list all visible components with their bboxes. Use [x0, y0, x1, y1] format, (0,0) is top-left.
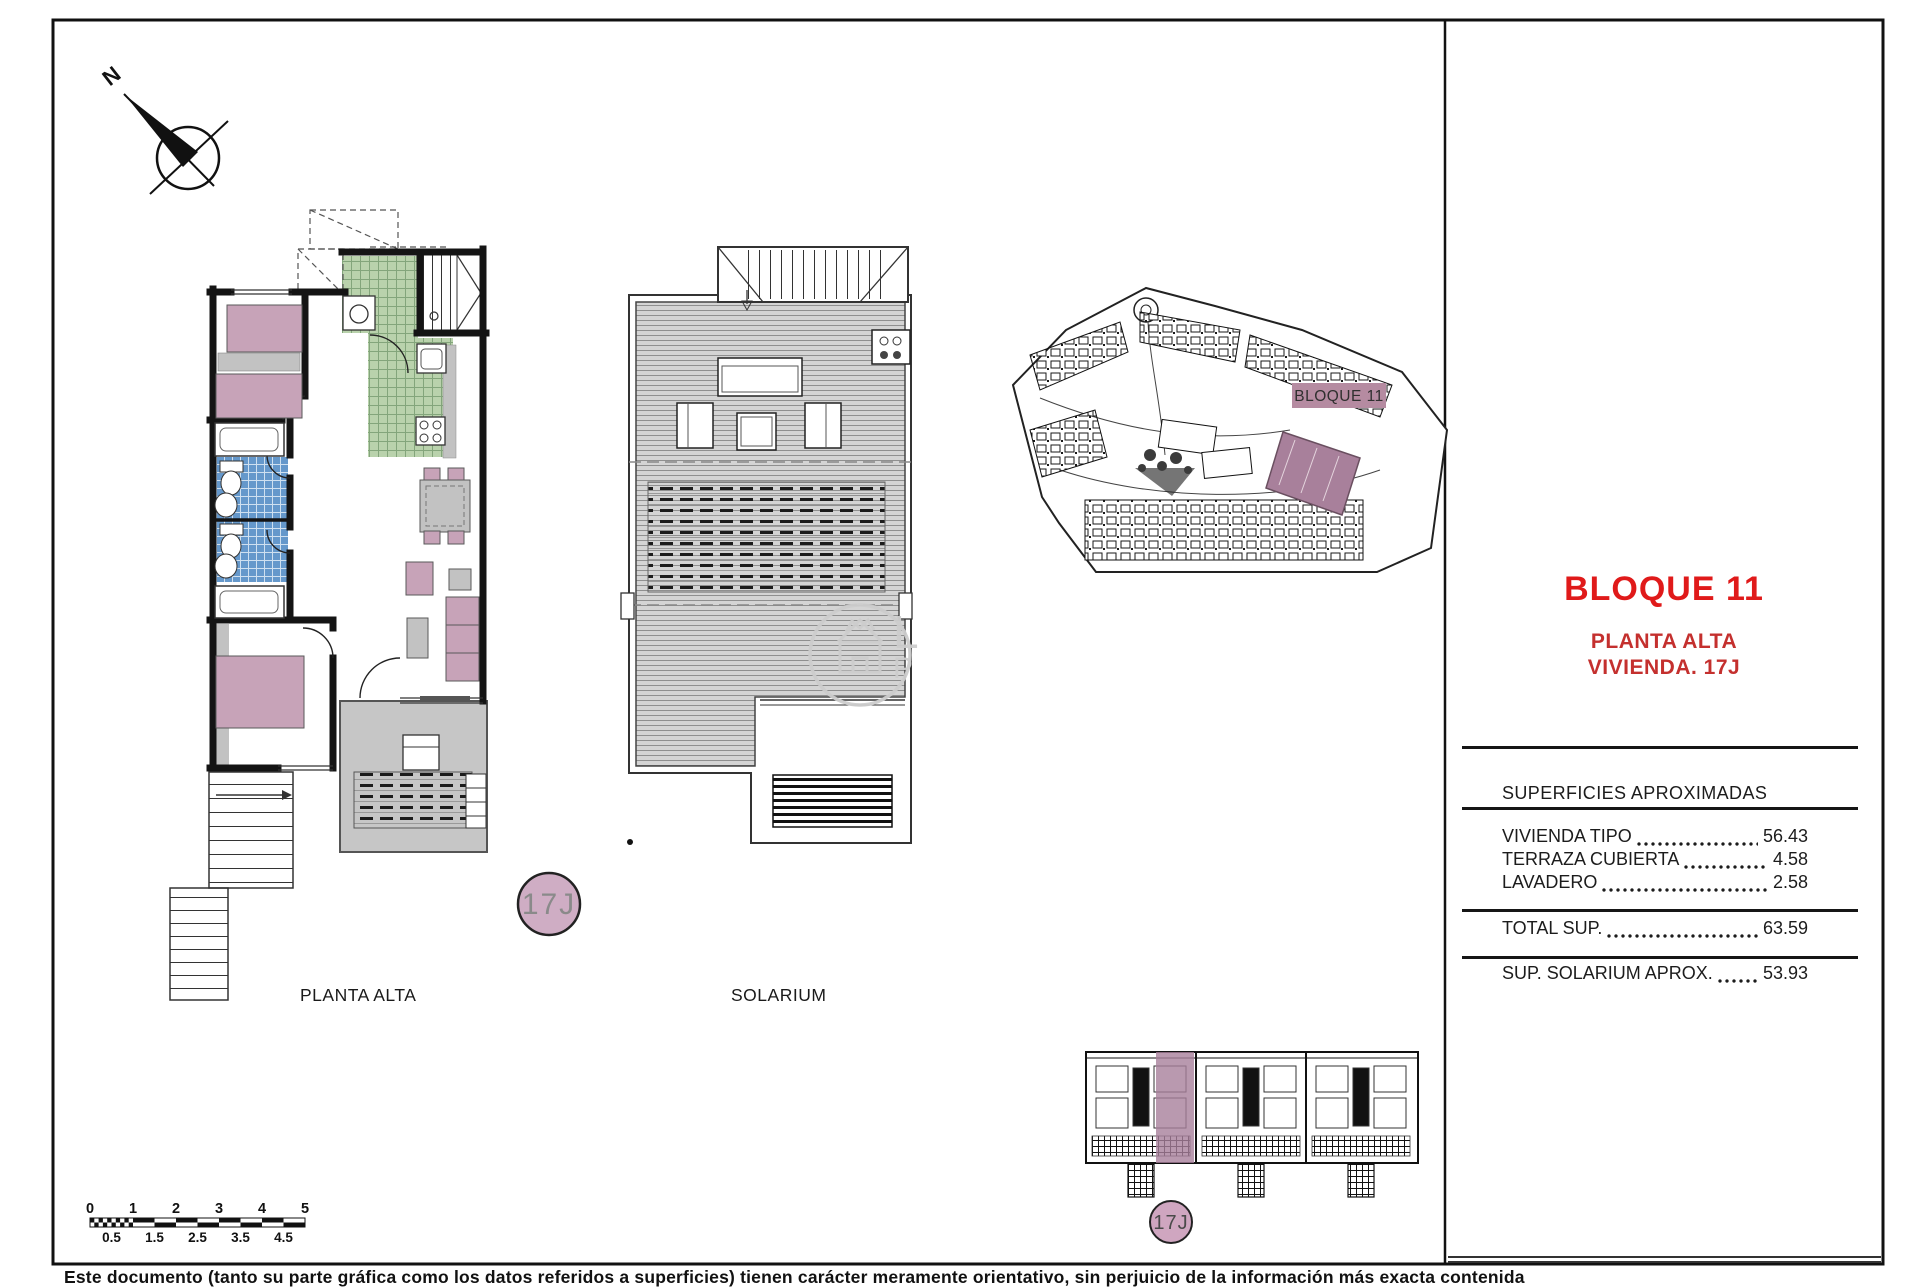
scale-tick-0: 0 [86, 1201, 94, 1217]
scale-bar-bottom-labels: 0.5 1.5 2.5 3.5 4.5 [102, 1230, 293, 1245]
watermark-letter-bottom: P [893, 652, 913, 685]
exterior-staircase [170, 772, 293, 1000]
key-plan-units [1092, 1066, 1410, 1156]
surface-label: TERRAZA CUBIERTA [1502, 849, 1679, 870]
surface-label: VIVIENDA TIPO [1502, 826, 1632, 847]
cabinet [407, 618, 428, 658]
scale-tick-15: 1.5 [145, 1230, 164, 1245]
key-plan-highlighted-unit [1156, 1052, 1194, 1163]
stove [416, 417, 445, 445]
key-plan-stair-towers [1128, 1163, 1374, 1197]
leader-dots [1718, 969, 1758, 984]
surface-solarium-row: SUP. SOLARIUM APROX. 53.93 [1502, 963, 1808, 984]
ac-unit [403, 735, 439, 770]
site-plan: BLOQUE 11 [1013, 288, 1447, 572]
bed-double [216, 656, 304, 728]
scale-tick-5: 5 [301, 1201, 309, 1217]
corner-dot [627, 839, 633, 845]
scale-tick-45: 4.5 [274, 1230, 293, 1245]
plan-sheet: N [0, 0, 1920, 1280]
rule [1462, 956, 1858, 959]
site-block-label-text: BLOQUE 11 [1294, 388, 1384, 405]
leader-dots [1637, 832, 1758, 847]
sink-2 [215, 554, 237, 578]
scale-bar: 0 1 2 3 4 5 0.5 1.5 2.5 3.5 4.5 [86, 1201, 309, 1245]
floor-plan-unit-badge-label: 17J [522, 888, 576, 921]
key-plan-unit-badge-label: 17J [1153, 1212, 1188, 1234]
kitchen-sink [417, 344, 446, 373]
surface-value: 56.43 [1763, 826, 1808, 847]
surface-label: TOTAL SUP. [1502, 918, 1602, 939]
rule [1462, 746, 1858, 749]
surface-row: TERRAZA CUBIERTA 4.58 [1502, 849, 1808, 870]
pillar-marker-left [621, 593, 634, 619]
solarium-stair-access [718, 247, 908, 310]
scale-tick-35: 3.5 [231, 1230, 250, 1245]
surface-value: 63.59 [1763, 918, 1808, 939]
washing-machine [343, 296, 375, 330]
dining-set [420, 468, 470, 544]
scale-tick-1: 1 [129, 1201, 137, 1217]
scale-tick-4: 4 [258, 1201, 266, 1217]
divider [1448, 1256, 1881, 1258]
leader-dots [1684, 855, 1768, 870]
sink-1 [215, 493, 237, 517]
north-arrow-icon: N [97, 61, 228, 194]
solarium-plan: SOLARIUM [621, 247, 912, 1005]
site-block-label: BLOQUE 11 [1292, 383, 1386, 408]
key-plan: 17J [1086, 1052, 1418, 1243]
toilet-1 [220, 461, 243, 495]
chair [424, 531, 440, 544]
title-block-subtitle-2: VIVIENDA. 17J [1445, 656, 1883, 680]
watermark-letter-top: L [893, 606, 919, 658]
floor-plan: 17J PLANTA ALTA [170, 210, 580, 1005]
surface-label: SUP. SOLARIUM APROX. [1502, 963, 1713, 984]
nightstand [218, 353, 300, 371]
surface-value: 4.58 [1773, 849, 1808, 870]
surface-total-row: TOTAL SUP. 63.59 [1502, 918, 1808, 939]
armchair [406, 562, 433, 595]
lounge-chair [466, 774, 486, 828]
surface-value: 2.58 [1773, 872, 1808, 893]
surface-row: LAVADERO 2.58 [1502, 872, 1808, 893]
scale-tick-25: 2.5 [188, 1230, 207, 1245]
rule [1462, 807, 1858, 810]
leader-dots [1607, 924, 1758, 939]
title-block-title: BLOQUE 11 [1445, 570, 1883, 609]
surfaces-header: SUPERFICIES APROXIMADAS [1502, 783, 1767, 804]
solarium-pergola [648, 482, 885, 592]
scale-tick-3: 3 [215, 1201, 223, 1217]
bed-single-2 [216, 374, 302, 418]
pergola [354, 772, 472, 828]
floor-plan-unit-badge: 17J [518, 873, 580, 935]
floor-plan-label: PLANTA ALTA [300, 985, 416, 1005]
scale-tick-2: 2 [172, 1201, 180, 1217]
tv-bench [420, 696, 470, 701]
chair [448, 468, 464, 481]
side-table [449, 569, 471, 590]
grille [773, 775, 892, 827]
bed-single-1 [227, 305, 302, 352]
surface-row: VIVIENDA TIPO 56.43 [1502, 826, 1808, 847]
barbecue [872, 330, 910, 364]
north-label: N [97, 61, 125, 90]
rule [1462, 909, 1858, 912]
surface-label: LAVADERO [1502, 872, 1597, 893]
key-plan-unit-badge: 17J [1150, 1201, 1192, 1243]
interior-staircase [423, 255, 481, 330]
surface-value: 53.93 [1763, 963, 1808, 984]
chair [424, 468, 440, 481]
leader-dots [1602, 878, 1768, 893]
title-block-subtitle-1: PLANTA ALTA [1445, 630, 1883, 654]
divider [1448, 1261, 1881, 1263]
solarium-label: SOLARIUM [731, 985, 826, 1005]
chair [448, 531, 464, 544]
scale-tick-05: 0.5 [102, 1230, 121, 1245]
sofa [446, 597, 479, 681]
dining-table [420, 480, 470, 532]
scale-bar-top-labels: 0 1 2 3 4 5 [86, 1201, 309, 1217]
toilet-2 [220, 524, 243, 558]
footer-disclaimer: Este documento (tanto su parte gráfica c… [64, 1267, 1864, 1288]
title-block: BLOQUE 11 PLANTA ALTA VIVIENDA. 17J SUPE… [1445, 20, 1883, 1264]
